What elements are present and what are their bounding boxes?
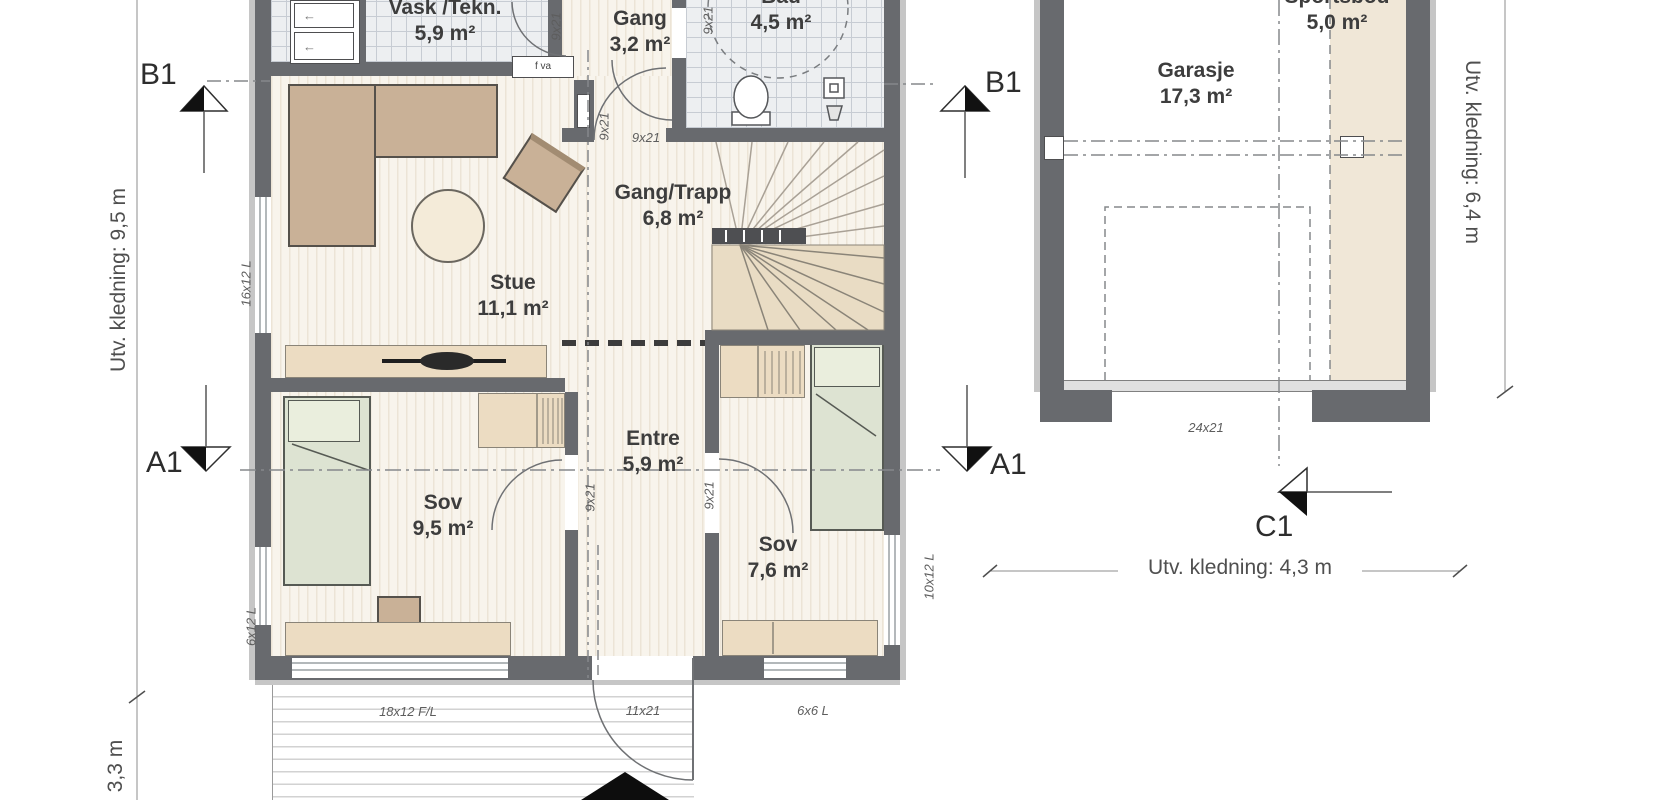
room-label-entre: Entre 5,9 m² [588, 426, 718, 478]
room-area: 5,0 m² [1262, 10, 1412, 36]
opening-label-window-sov-front: 18x12 F/L [363, 704, 453, 719]
wall-bad-bottom [672, 128, 900, 142]
dim-label-porch-depth: 3,3 m [104, 726, 128, 800]
room-label-sportsbod: Sportsbod 5,0 m² [1262, 0, 1412, 36]
floor-plan-canvas: ← ← f va [0, 0, 1670, 800]
opening-label-garage-door: 24x21 [1176, 420, 1236, 435]
marker-label-b1-right: B1 [985, 66, 1022, 100]
opening-label-door-sov9: 9x21 [583, 475, 598, 521]
room-area: 5,9 m² [588, 452, 718, 478]
appliance-arrow-icon: ← [303, 40, 316, 53]
wall-sov9-entre-lower [565, 530, 578, 656]
room-label-gang: Gang 3,2 m² [580, 6, 700, 58]
opening-label-window-sov-left: 6x12 L [244, 587, 259, 667]
wall-garage-left [1040, 0, 1064, 392]
dim-label-house-side: Utv. kledning: 9,5 m [107, 165, 131, 395]
marker-label-a1-right: A1 [990, 448, 1027, 482]
wall-garage-right [1406, 0, 1430, 392]
room-name: Sov [713, 532, 843, 558]
marker-label-a1-left: A1 [146, 446, 183, 480]
room-name: Bad [721, 0, 841, 10]
marker-b1-left-icon [181, 86, 227, 173]
wall-gang-bad-lower [672, 58, 686, 128]
opening-label-window-sov2-front: 6x6 L [785, 703, 841, 718]
room-name: Gang [580, 6, 700, 32]
opening-label-door-bad: 9x21 [701, 0, 716, 44]
room-area: 4,5 m² [721, 10, 841, 36]
desk-sov-7 [722, 620, 878, 656]
room-label-sov9: Sov 9,5 m² [378, 490, 508, 542]
entrance-door-gap [592, 656, 693, 680]
garage-wall-box-left [1044, 136, 1064, 160]
cladding-right [900, 0, 906, 680]
room-name: Gang/Trapp [588, 180, 758, 206]
sofa-left-section [288, 84, 376, 247]
opening-label-entrance-door: 11x21 [615, 703, 671, 718]
opening-label-door-gang: 9x21 [618, 130, 674, 145]
cladding-garage-right [1430, 0, 1436, 392]
cladding-bottom [255, 680, 900, 685]
marker-label-b1-left: B1 [140, 58, 177, 92]
opening-label-window-sov2-side: 10x12 L [922, 532, 937, 622]
pillow-sov-7 [814, 347, 880, 387]
room-name: Stue [448, 270, 578, 296]
wall-gang-bottom-left [562, 128, 594, 142]
room-area: 7,6 m² [713, 558, 843, 584]
room-label-vask: Vask /Tekn. 5,9 m² [365, 0, 525, 47]
room-name: Garasje [1128, 58, 1264, 84]
marker-b1-right-icon [941, 86, 989, 178]
room-label-sov7: Sov 7,6 m² [713, 532, 843, 584]
room-label-gang-trapp: Gang/Trapp 6,8 m² [588, 180, 758, 232]
room-area: 11,1 m² [448, 296, 578, 322]
wardrobe-sov-7 [720, 345, 805, 398]
room-name: Sov [378, 490, 508, 516]
wall-stue-sov [255, 378, 565, 392]
opening-label-door-vask: 9x21 [549, 4, 564, 50]
wall-sov7-top [705, 330, 900, 345]
floor-sportsbod [1330, 0, 1406, 380]
room-label-garasje: Garasje 17,3 m² [1128, 58, 1264, 110]
wall-vask-bottom [255, 62, 512, 76]
nightstand-sov-9 [377, 596, 421, 624]
dim-label-garage-front: Utv. kledning: 4,3 m [1125, 556, 1355, 580]
window-sov7-front [764, 658, 846, 678]
room-label-bad: Bad 4,5 m² [721, 0, 841, 36]
dim-label-garage-side: Utv. kledning: 6,4 m [1460, 37, 1484, 267]
window-sov7-right [884, 535, 900, 645]
wall-sov9-entre-upper [565, 392, 578, 455]
stue-door-panel [577, 94, 590, 128]
tv-bench [285, 345, 547, 378]
room-area: 5,9 m² [365, 21, 525, 47]
marker-c1-icon [1279, 468, 1392, 516]
garage-wall-box-right [1340, 136, 1364, 158]
room-label-stue: Stue 11,1 m² [448, 270, 578, 322]
window-sov9-front [292, 658, 508, 678]
wall-garage-foot-right [1312, 390, 1430, 422]
marker-a1-right-icon [943, 385, 991, 471]
car-space-outline [1105, 207, 1310, 380]
opening-label-window-stue: 16x12 L [239, 244, 254, 324]
wardrobe-sov-9 [478, 393, 565, 448]
pillow-sov-9 [288, 400, 360, 442]
window-stue-left [255, 197, 271, 333]
room-area: 3,2 m² [580, 32, 700, 58]
room-name: Sportsbod [1262, 0, 1412, 10]
wall-garage-foot-left [1040, 390, 1112, 422]
marker-a1-left-icon [182, 385, 230, 471]
appliance-closet: ← ← [290, 0, 360, 64]
tech-cabinet: f va [512, 56, 574, 78]
room-area: 17,3 m² [1128, 84, 1264, 110]
desk-sov-9 [285, 622, 511, 656]
opening-label-door-stue: 9x21 [597, 104, 612, 150]
opening-label-door-sov7: 9x21 [702, 473, 717, 519]
round-table [411, 189, 485, 263]
room-area: 6,8 m² [588, 206, 758, 232]
door-gap-sov9 [565, 455, 578, 530]
room-area: 9,5 m² [378, 516, 508, 542]
room-name: Entre [588, 426, 718, 452]
appliance-arrow-icon: ← [303, 9, 316, 22]
tech-cabinet-label: f va [513, 61, 573, 72]
marker-label-c1: C1 [1255, 510, 1293, 544]
room-name: Vask /Tekn. [365, 0, 525, 21]
